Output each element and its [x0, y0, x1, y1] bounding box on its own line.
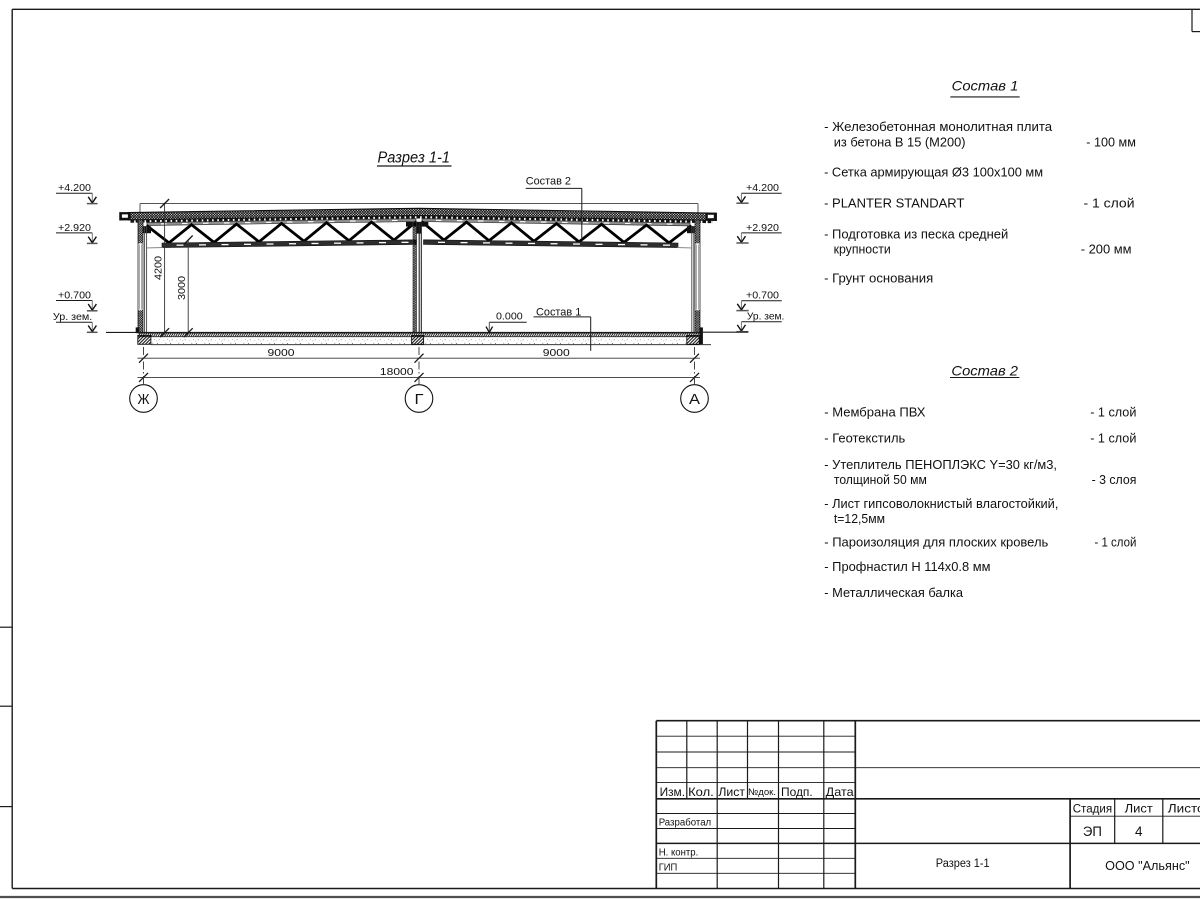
- svg-text:+2.920: +2.920: [58, 222, 91, 234]
- svg-text:Н. контр.: Н. контр.: [659, 847, 699, 858]
- svg-text:из бетона В 15 (М200): из бетона В 15 (М200): [834, 134, 966, 149]
- svg-text:Дата: Дата: [826, 785, 854, 799]
- svg-text:Кол.: Кол.: [688, 785, 714, 799]
- svg-text:- 1 слой: - 1 слой: [1090, 431, 1136, 446]
- svg-text:ЭП: ЭП: [1083, 824, 1102, 839]
- svg-text:ГИП: ГИП: [659, 862, 678, 873]
- svg-text:4200: 4200: [153, 256, 165, 280]
- svg-text:+0.700: +0.700: [58, 289, 91, 301]
- svg-text:- Сетка армирующая Ø3 100х100: - Сетка армирующая Ø3 100х100 мм: [824, 165, 1043, 180]
- svg-text:- PLANTER STANDART: - PLANTER STANDART: [824, 196, 964, 211]
- svg-text:Ж: Ж: [138, 391, 150, 408]
- svg-text:- 1 слой: - 1 слой: [1090, 405, 1136, 420]
- svg-text:- Лист гипсоволокнистый влагос: - Лист гипсоволокнистый влагостойкий,: [824, 496, 1058, 511]
- svg-text:t=12,5мм: t=12,5мм: [834, 511, 885, 526]
- svg-text:+2.920: +2.920: [746, 222, 779, 234]
- svg-text:Состав 2: Состав 2: [951, 363, 1018, 379]
- svg-text:толщиной 50 мм: толщиной 50 мм: [834, 472, 927, 487]
- svg-text:3000: 3000: [176, 276, 188, 300]
- svg-text:А: А: [689, 391, 700, 408]
- svg-text:- Профнастил Н 114х0.8 мм: - Профнастил Н 114х0.8 мм: [824, 559, 990, 574]
- svg-text:Разработал: Разработал: [659, 816, 712, 828]
- svg-text:Стадия: Стадия: [1073, 803, 1112, 815]
- svg-text:Ур. зем.: Ур. зем.: [747, 311, 785, 323]
- svg-text:- Металлическая балка: - Металлическая балка: [824, 585, 963, 600]
- svg-text:18000: 18000: [380, 367, 414, 378]
- svg-text:Г: Г: [415, 391, 424, 408]
- svg-text:Листов: Листов: [1168, 803, 1200, 815]
- svg-text:- Утеплитель ПЕНОПЛЭКС Y=30 кг: - Утеплитель ПЕНОПЛЭКС Y=30 кг/м3,: [824, 457, 1057, 472]
- svg-text:Состав 1: Состав 1: [952, 78, 1019, 94]
- svg-text:крупности: крупности: [834, 242, 891, 257]
- svg-text:Подп.: Подп.: [781, 785, 813, 799]
- svg-text:Изм.: Изм.: [660, 785, 685, 799]
- svg-text:4: 4: [1135, 824, 1143, 839]
- svg-text:+0.700: +0.700: [746, 290, 779, 302]
- svg-text:№док.: №док.: [748, 787, 776, 798]
- svg-text:Разрез 1-1: Разрез 1-1: [936, 858, 990, 870]
- svg-text:- 1 слой: - 1 слой: [1095, 534, 1137, 549]
- svg-text:ООО "Альянс": ООО "Альянс": [1105, 859, 1190, 873]
- svg-text:Лист: Лист: [1125, 803, 1154, 815]
- svg-text:- Подготовка из песка средней: - Подготовка из песка средней: [824, 227, 1008, 242]
- svg-text:- 200 мм: - 200 мм: [1081, 242, 1132, 257]
- svg-text:Разрез 1-1: Разрез 1-1: [378, 150, 451, 167]
- svg-text:- 3 слоя: - 3 слоя: [1092, 472, 1137, 487]
- svg-text:9000: 9000: [543, 348, 571, 359]
- svg-text:- 100 мм: - 100 мм: [1086, 134, 1136, 149]
- svg-text:- 1 слой: - 1 слой: [1084, 196, 1135, 211]
- svg-text:Лист: Лист: [718, 785, 745, 799]
- svg-text:+4.200: +4.200: [58, 182, 91, 194]
- svg-text:- Мембрана ПВХ: - Мембрана ПВХ: [824, 405, 925, 420]
- svg-text:Состав 2: Состав 2: [526, 175, 571, 187]
- svg-text:+4.200: +4.200: [746, 182, 779, 194]
- svg-text:- Железобетонная монолитная п: - Железобетонная монолитная плита: [824, 119, 1053, 134]
- svg-text:0.000: 0.000: [496, 310, 523, 322]
- svg-text:9000: 9000: [268, 348, 296, 359]
- svg-text:- Геотекстиль: - Геотекстиль: [824, 431, 905, 446]
- svg-text:- Пароизоляция для плоских кро: - Пароизоляция для плоских кровель: [824, 534, 1048, 549]
- svg-text:- Грунт основания: - Грунт основания: [824, 271, 933, 286]
- svg-text:Ур. зем.: Ур. зем.: [53, 311, 92, 323]
